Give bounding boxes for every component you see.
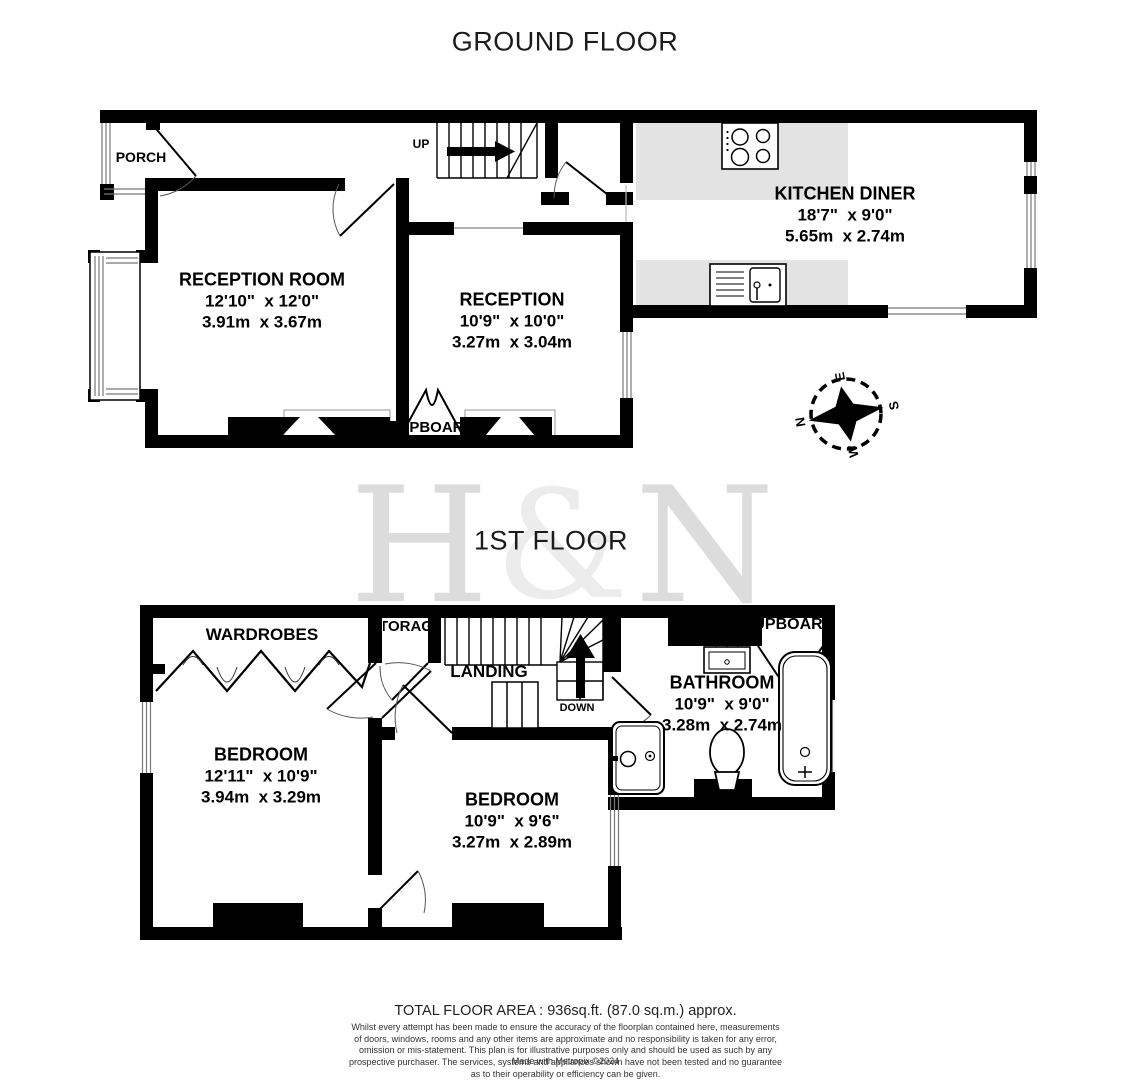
compass-east: E <box>832 371 848 382</box>
room-label-bedroom-2: BEDROOM 10'9" x 9'6" 3.27m x 2.89m <box>452 789 572 852</box>
room-label-bedroom-1: BEDROOM 12'11" x 10'9" 3.94m x 3.29m <box>201 744 321 807</box>
reception-room-metric: 3.91m x 3.67m <box>179 312 345 333</box>
room-label-gf-cupboard: CUPBOARD <box>391 418 471 437</box>
room-label-storage: STORAGE <box>383 616 429 636</box>
gf-bay-window <box>90 252 140 400</box>
bedroom-2-metric: 3.27m x 2.89m <box>452 832 572 853</box>
room-label-reception-room: RECEPTION ROOM 12'10" x 12'0" 3.91m x 3.… <box>179 269 345 332</box>
metropix-credit: Made with Metropix ©2024 <box>0 1056 1131 1066</box>
bathroom-metric: 3.28m x 2.74m <box>662 715 782 736</box>
bedroom-1-name: BEDROOM <box>201 744 321 766</box>
bedroom-1-imperial: 12'11" x 10'9" <box>201 766 321 787</box>
reception-imperial: 10'9" x 10'0" <box>452 311 572 332</box>
compass-north: N <box>792 416 808 428</box>
room-label-ff-cupboard: CUPBOARD <box>753 615 823 635</box>
gf-cupboard-text: CUPBOARD <box>391 419 471 436</box>
room-label-reception: RECEPTION 10'9" x 10'0" 3.27m x 3.04m <box>452 289 572 352</box>
stairs-down-label: DOWN <box>560 702 595 714</box>
kitchen-diner-metric: 5.65m x 2.74m <box>774 226 915 247</box>
compass-south: S <box>886 400 902 411</box>
room-label-landing: LANDING <box>450 662 527 682</box>
storage-text: STORAGE <box>383 618 429 635</box>
ff-landing-store-box <box>492 682 538 728</box>
bedroom-2-name: BEDROOM <box>452 789 572 811</box>
ground-floor-title: GROUND FLOOR <box>452 27 679 58</box>
reception-name: RECEPTION <box>452 289 572 311</box>
disclaimer-text: Whilst every attempt has been made to en… <box>0 1022 1131 1080</box>
room-label-bathroom: BATHROOM 10'9" x 9'0" 3.28m x 2.74m <box>662 672 782 735</box>
reception-room-name: RECEPTION ROOM <box>179 269 345 291</box>
total-floor-area: TOTAL FLOOR AREA : 936sq.ft. (87.0 sq.m.… <box>0 1003 1131 1019</box>
bedroom-1-metric: 3.94m x 3.29m <box>201 787 321 808</box>
first-floor-title: 1ST FLOOR <box>474 526 628 557</box>
bedroom-2-imperial: 10'9" x 9'6" <box>452 811 572 832</box>
ff-stairs-down-arrow <box>566 634 595 698</box>
bathroom-name: BATHROOM <box>662 672 782 694</box>
kitchen-diner-name: KITCHEN DINER <box>774 183 915 205</box>
reception-metric: 3.27m x 3.04m <box>452 332 572 353</box>
stairs-up-label: UP <box>413 137 430 151</box>
room-label-wardrobes: WARDROBES <box>206 625 318 645</box>
room-label-porch: PORCH <box>116 149 167 165</box>
bathroom-imperial: 10'9" x 9'0" <box>662 694 782 715</box>
gf-stairs-up-arrow <box>447 141 515 162</box>
gf-chimney-breasts <box>228 417 552 436</box>
kitchen-diner-imperial: 18'7" x 9'0" <box>774 205 915 226</box>
room-label-kitchen-diner: KITCHEN DINER 18'7" x 9'0" 5.65m x 2.74m <box>774 183 915 246</box>
ff-bathtub <box>779 652 831 785</box>
compass-west: W <box>845 443 862 458</box>
ff-basin <box>704 643 750 673</box>
gf-sink <box>710 264 786 306</box>
ff-cupboard-text: CUPBOARD <box>753 616 823 634</box>
floorplan-page: H&N <box>0 0 1131 1080</box>
gf-hob <box>722 123 778 169</box>
ff-wardrobe-front <box>156 651 370 691</box>
reception-room-imperial: 12'10" x 12'0" <box>179 291 345 312</box>
compass: N E S W <box>785 362 908 467</box>
ff-shower-basin <box>608 722 664 794</box>
gf-staircase <box>437 123 537 178</box>
